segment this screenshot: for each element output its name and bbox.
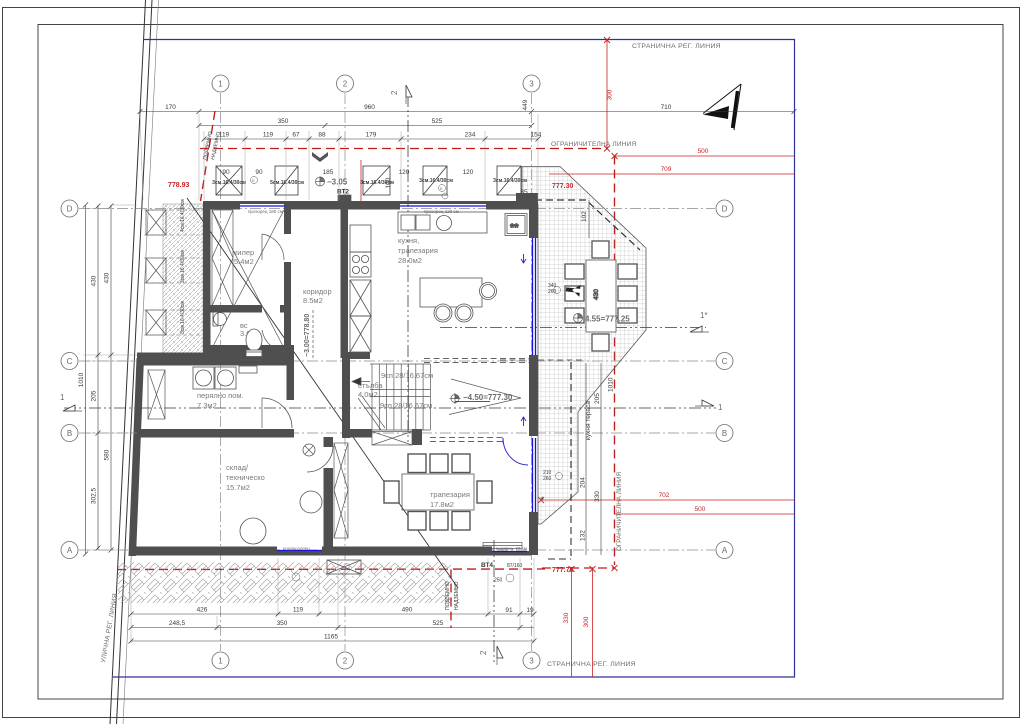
svg-text:300: 300	[607, 89, 614, 100]
svg-text:коридор: коридор	[303, 287, 332, 296]
svg-text:−4.50=777.30: −4.50=777.30	[463, 393, 513, 402]
svg-text:1165: 1165	[324, 634, 338, 641]
svg-text:3см.16.4/30см: 3см.16.4/30см	[419, 178, 453, 184]
svg-text:778.93: 778.93	[168, 182, 190, 189]
svg-text:205: 205	[594, 393, 601, 404]
svg-text:кухня,: кухня,	[398, 236, 419, 245]
svg-text:склад/: склад/	[226, 463, 249, 472]
svg-text:−3.00=778.80: −3.00=778.80	[304, 314, 311, 357]
svg-text:килер: килер	[234, 248, 254, 257]
svg-text:Е: Е	[252, 178, 255, 183]
svg-text:ВТ4: ВТ4	[481, 562, 493, 569]
svg-text:2: 2	[479, 650, 488, 655]
svg-text:Е: Е	[440, 186, 443, 191]
svg-text:1: 1	[718, 403, 723, 412]
svg-text:9сп 28/16.67см: 9сп 28/16.67см	[381, 371, 433, 380]
svg-text:205: 205	[91, 390, 98, 401]
svg-text:449: 449	[522, 99, 529, 110]
svg-text:3: 3	[529, 80, 534, 89]
svg-text:204: 204	[580, 477, 587, 488]
svg-text:1010: 1010	[608, 377, 615, 392]
svg-text:179: 179	[366, 132, 377, 139]
svg-text:234: 234	[465, 132, 476, 139]
svg-text:трапезария: трапезария	[430, 490, 470, 499]
svg-text:кухня тераса: кухня тераса	[585, 401, 592, 440]
svg-text:260: 260	[543, 476, 552, 482]
svg-text:490: 490	[402, 607, 413, 614]
svg-text:19: 19	[526, 607, 534, 614]
svg-text:перялно пом.: перялно пом.	[197, 391, 244, 400]
svg-text:СТРАНИЧНА РЕГ. ЛИНИЯ: СТРАНИЧНА РЕГ. ЛИНИЯ	[632, 43, 721, 50]
svg-text:9сп 28/16.67см: 9сп 28/16.67см	[380, 401, 432, 410]
svg-text:3см.16.4/30см: 3см.16.4/30см	[180, 301, 186, 334]
svg-text:3см.16.4/30см: 3см.16.4/30см	[180, 250, 186, 283]
svg-text:120: 120	[463, 169, 474, 176]
svg-text:2: 2	[343, 80, 348, 89]
svg-text:525: 525	[433, 620, 444, 627]
svg-text:330: 330	[563, 612, 570, 623]
svg-text:A: A	[67, 546, 73, 555]
svg-text:1: 1	[218, 657, 223, 666]
svg-text:подпрозорец: подпрозорец	[283, 546, 310, 551]
svg-text:**: **	[510, 222, 519, 234]
svg-text:119: 119	[293, 607, 304, 614]
svg-text:15.7м2: 15.7м2	[226, 483, 250, 492]
svg-text:2: 2	[390, 90, 399, 95]
svg-text:2: 2	[343, 657, 348, 666]
svg-text:1010: 1010	[78, 372, 85, 387]
svg-text:710: 710	[661, 104, 672, 111]
svg-text:426: 426	[197, 607, 208, 614]
svg-text:28.0м2: 28.0м2	[398, 256, 422, 265]
svg-text:СТРАНИЧНА РЕГ. ЛИНИЯ: СТРАНИЧНА РЕГ. ЛИНИЯ	[547, 661, 636, 668]
svg-text:430: 430	[104, 272, 111, 283]
svg-text:91: 91	[505, 607, 513, 614]
svg-text:100: 100	[385, 177, 392, 188]
svg-text:350: 350	[278, 118, 289, 125]
svg-text:техническо: техническо	[226, 473, 265, 482]
svg-text:90: 90	[255, 169, 263, 176]
svg-text:709: 709	[661, 166, 672, 173]
svg-text:ОГРАНИЧИТЕЛНА ЛИНИЯ: ОГРАНИЧИТЕЛНА ЛИНИЯ	[551, 141, 636, 148]
svg-text:350: 350	[277, 620, 288, 627]
svg-text:прозорец 120 см: прозорец 120 см	[424, 209, 459, 214]
svg-text:250: 250	[494, 578, 503, 584]
svg-text:трапезария: трапезария	[398, 246, 438, 255]
svg-text:525: 525	[432, 118, 443, 125]
svg-text:8.5м2: 8.5м2	[303, 296, 323, 305]
svg-text:1: 1	[60, 393, 65, 402]
svg-text:90: 90	[222, 169, 230, 176]
svg-text:430: 430	[593, 289, 600, 300]
svg-text:960: 960	[364, 104, 375, 111]
svg-text:A: A	[722, 546, 728, 555]
svg-text:1: 1	[218, 80, 223, 89]
svg-text:17.8м2: 17.8м2	[430, 500, 454, 509]
svg-text:4см.16.4/30см: 4см.16.4/30см	[180, 199, 186, 232]
svg-text:ОГРАНИЧИТЕЛНА ЛИНИЯ: ОГРАНИЧИТЕЛНА ЛИНИЯ	[616, 472, 623, 551]
svg-text:B: B	[722, 429, 727, 438]
svg-text:D: D	[722, 205, 728, 214]
svg-text:4.55=777.25: 4.55=777.25	[585, 315, 630, 324]
svg-text:67: 67	[292, 132, 300, 139]
svg-text:132: 132	[580, 530, 587, 541]
svg-text:D: D	[67, 205, 73, 214]
svg-text:3см.16.4/30см: 3см.16.4/30см	[212, 180, 246, 186]
svg-text:300: 300	[583, 616, 590, 627]
svg-text:4.0м2: 4.0м2	[358, 390, 378, 399]
svg-text:ПОДЗЕМНО: ПОДЗЕМНО	[445, 581, 451, 610]
svg-text:88: 88	[318, 132, 326, 139]
svg-text:−3.05: −3.05	[327, 178, 348, 187]
svg-text:302,5: 302,5	[91, 487, 98, 504]
svg-text:330: 330	[594, 491, 601, 502]
svg-text:500: 500	[695, 506, 706, 513]
svg-text:119: 119	[263, 132, 274, 139]
svg-text:430: 430	[91, 275, 98, 286]
svg-text:НАДЗЕМНО: НАДЗЕМНО	[454, 581, 460, 610]
svg-text:прозорец 180 см: прозорец 180 см	[248, 209, 283, 214]
svg-text:C: C	[67, 357, 73, 366]
svg-text:260: 260	[548, 289, 557, 295]
svg-text:777.75: 777.75	[552, 567, 574, 574]
svg-text:102: 102	[581, 211, 588, 222]
svg-text:1*: 1*	[700, 311, 708, 320]
svg-text:170: 170	[165, 104, 176, 111]
svg-text:702: 702	[659, 492, 670, 499]
svg-text:5см.16.4/30см: 5см.16.4/30см	[270, 180, 304, 186]
svg-text:154: 154	[531, 132, 542, 139]
svg-text:B: B	[67, 429, 72, 438]
svg-text:✳: ✳	[540, 496, 544, 502]
svg-text:3см.16.4/30см: 3см.16.4/30см	[493, 178, 527, 184]
svg-text:УЛИЧНА РЕГ. ЛИНИЯ: УЛИЧНА РЕГ. ЛИНИЯ	[100, 593, 119, 664]
svg-text:580: 580	[104, 449, 111, 460]
svg-text:500: 500	[698, 148, 709, 155]
svg-text:3: 3	[529, 657, 534, 666]
svg-text:C: C	[722, 357, 728, 366]
svg-text:248,5: 248,5	[169, 620, 186, 627]
svg-text:185: 185	[323, 169, 334, 176]
svg-text:7.3м2: 7.3м2	[197, 401, 217, 410]
